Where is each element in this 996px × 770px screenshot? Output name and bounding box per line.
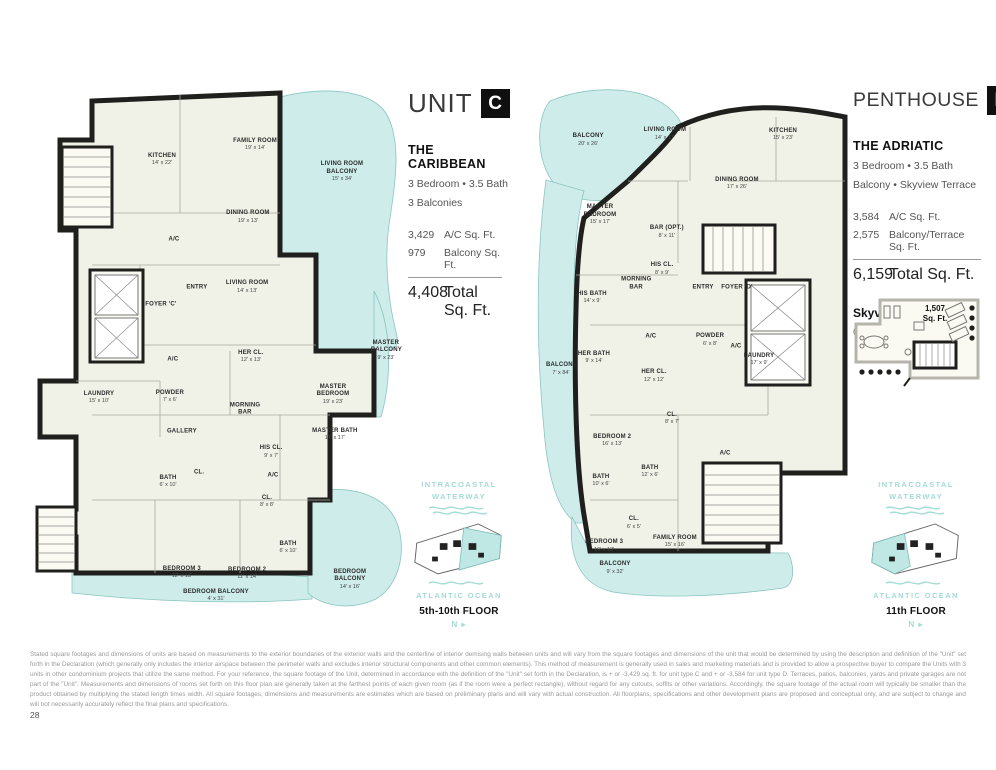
unit-c-stats: 3,429A/C Sq. Ft. 979Balcony Sq. Ft.	[408, 229, 502, 271]
room-label: BEDROOM BALCONY 14' x 16'	[326, 569, 374, 591]
unit-c-title: UNIT C	[408, 88, 508, 119]
room-label: A/C	[268, 472, 279, 480]
room-label: BEDROOM 3 12' x 13'	[163, 566, 201, 580]
room-label: BEDROOM 2 16' x 13'	[593, 434, 631, 448]
room-label: HER BATH 9' x 14'	[578, 351, 610, 365]
room-label: GALLERY	[167, 428, 197, 436]
room-label: MASTER BATH 17' x 17'	[312, 428, 357, 442]
room-label: BALCONY 7' x 84'	[546, 362, 576, 376]
room-label: KITCHEN 14' x 22'	[148, 153, 176, 167]
unit-c-total-row: 4,408 Total Sq. Ft.	[408, 277, 502, 320]
building-footprint-map	[411, 516, 507, 578]
room-label: HIS CL. 8' x 9'	[651, 262, 674, 276]
room-label: DINING ROOM 19' x 13'	[226, 210, 270, 224]
room-label: LIVING ROOM 14' x 17'	[644, 127, 687, 141]
ocean-watermark: ATLANTIC OCEAN	[403, 590, 515, 602]
room-label: LIVING ROOM 14' x 13'	[226, 280, 269, 294]
room-label: FOYER 'D'	[721, 284, 752, 292]
room-label: FAMILY ROOM 19' x 14'	[233, 138, 277, 152]
room-label: MASTER BEDROOM 15' x 17'	[576, 204, 624, 226]
penthouse-d-letter-badge: D	[987, 86, 996, 115]
penthouse-d-name: THE ADRIATIC	[853, 139, 995, 153]
legal-disclaimer: Stated square footages and dimensions of…	[30, 650, 966, 710]
unit-c-total-value: 4,408	[408, 284, 444, 320]
unit-c-floor-label: 5th-10th FLOOR	[403, 606, 515, 617]
unit-c-info-panel: UNIT C THE CARIBBEAN 3 Bedroom • 3.5 Bat…	[408, 88, 508, 320]
room-label: LAUNDRY 15' x 10'	[84, 391, 115, 405]
penthouse-d-spec-balcony-terrace: Balcony • Skyview Terrace	[853, 179, 995, 191]
penthouse-d-floor-label: 11th FLOOR	[860, 606, 972, 617]
wave-icon	[427, 580, 491, 590]
penthouse-d-total-label: Total Sq. Ft.	[889, 266, 974, 284]
unit-c-spec-balconies: 3 Balconies	[408, 197, 508, 209]
north-indicator: N ▸	[403, 620, 515, 629]
room-label: A/C	[720, 450, 731, 458]
room-label: HIS BATH 14' x 9'	[577, 291, 607, 305]
unit-c-spec-bed-bath: 3 Bedroom • 3.5 Bath	[408, 178, 508, 190]
room-label: CL.	[194, 469, 204, 477]
room-label: MASTER BEDROOM 19' x 23'	[309, 384, 357, 406]
room-label: BEDROOM BALCONY 4' x 31'	[183, 589, 249, 603]
terrace-area-label: 1,507 Sq. Ft.	[912, 304, 958, 325]
stat-row: 979Balcony Sq. Ft.	[408, 247, 502, 271]
room-label: HER CL. 12' x 12'	[641, 369, 666, 383]
penthouse-d-stats: 3,584A/C Sq. Ft. 2,575Balcony/Terrace Sq…	[853, 211, 981, 253]
room-label: CL. 8' x 8'	[260, 495, 274, 509]
room-label: BATH 6' x 10'	[279, 541, 296, 555]
unit-c-keyplan: INTRACOASTAL WATERWAY ATLANTIC OCEAN 5th…	[403, 479, 515, 629]
room-label: HER CL. 12' x 13'	[238, 350, 263, 364]
room-label: CL. 8' x 7'	[665, 412, 679, 426]
page-number: 28	[30, 710, 39, 720]
room-label: A/C	[167, 356, 178, 364]
penthouse-d-title-word: PENTHOUSE	[853, 89, 979, 112]
room-label: BALCONY 9' x 32'	[599, 561, 630, 575]
waterway-watermark: INTRACOASTAL WATERWAY	[403, 479, 515, 503]
north-indicator: N ▸	[860, 620, 972, 629]
penthouse-d-floorplan: BALCONY 20' x 26' LIVING ROOM 14' x 17' …	[528, 85, 848, 620]
penthouse-d-spec-bed-bath: 3 Bedroom • 3.5 Bath	[853, 160, 995, 172]
room-label: MORNING BAR	[230, 402, 260, 417]
room-label: A/C	[645, 333, 656, 341]
skyview-terrace-miniplan: 1,507 Sq. Ft.	[850, 294, 990, 390]
penthouse-d-keyplan: INTRACOASTAL WATERWAY ATLANTIC OCEAN 11t…	[860, 479, 972, 629]
unit-c-total-label: Total Sq. Ft.	[444, 284, 502, 320]
waterway-watermark: INTRACOASTAL WATERWAY	[860, 479, 972, 503]
room-label: FAMILY ROOM 15' x 16'	[653, 535, 697, 549]
ocean-watermark: ATLANTIC OCEAN	[860, 590, 972, 602]
penthouse-d-total-value: 6,159	[853, 266, 889, 284]
room-label: MASTER BALCONY 9' x 23'	[371, 340, 401, 362]
room-label: BAR (OPT.) 8' x 11'	[650, 225, 684, 239]
stat-row: 2,575Balcony/Terrace Sq. Ft.	[853, 229, 981, 253]
wave-icon	[884, 505, 948, 515]
room-label: BATH 10' x 6'	[592, 474, 609, 488]
room-label: POWDER 6' x 8'	[696, 333, 724, 347]
room-label: BEDROOM 3 16' x 13'	[585, 539, 623, 553]
room-label: BALCONY 20' x 26'	[573, 133, 604, 147]
room-label: HIS CL. 9' x 7'	[260, 445, 283, 459]
brochure-page: KITCHEN 14' x 22' FAMILY ROOM 19' x 14' …	[0, 0, 996, 770]
room-label: A/C	[169, 236, 180, 244]
room-label: BEDROOM 2 11' x 14'	[228, 567, 266, 581]
room-label: A/C	[731, 343, 742, 351]
unit-c-name: THE CARIBBEAN	[408, 143, 508, 171]
room-label: MORNING BAR	[621, 277, 651, 292]
room-label: KITCHEN 15' x 23'	[769, 128, 797, 142]
stat-row: 3,429A/C Sq. Ft.	[408, 229, 502, 241]
wave-icon	[884, 580, 948, 590]
building-footprint-map	[868, 516, 964, 578]
penthouse-d-room-labels: BALCONY 20' x 26' LIVING ROOM 14' x 17' …	[528, 85, 848, 620]
room-label: BATH 12' x 6'	[641, 465, 658, 479]
room-label: FOYER 'C'	[145, 301, 176, 309]
penthouse-d-title: PENTHOUSE D	[853, 86, 995, 115]
room-label: ENTRY	[692, 284, 713, 292]
terrace-area-unit: Sq. Ft.	[912, 314, 958, 324]
terrace-area-value: 1,507	[912, 304, 958, 314]
unit-c-title-word: UNIT	[408, 88, 473, 119]
unit-c-room-labels: KITCHEN 14' x 22' FAMILY ROOM 19' x 14' …	[30, 85, 405, 620]
room-label: BATH 6' x 10'	[159, 475, 176, 489]
stat-row: 3,584A/C Sq. Ft.	[853, 211, 981, 223]
room-label: CL. 6' x 5'	[627, 516, 641, 530]
room-label: POWDER 7' x 6'	[156, 390, 184, 404]
room-label: LIVING ROOM BALCONY 15' x 34'	[318, 161, 366, 183]
wave-icon	[427, 505, 491, 515]
room-label: LAUNDRY 17' x 9'	[744, 353, 775, 367]
room-label: ENTRY	[186, 284, 207, 292]
unit-c-letter-badge: C	[481, 89, 510, 118]
penthouse-d-total-row: 6,159 Total Sq. Ft.	[853, 259, 981, 284]
room-label: DINING ROOM 17' x 26'	[715, 177, 759, 191]
unit-c-floorplan: KITCHEN 14' x 22' FAMILY ROOM 19' x 14' …	[30, 85, 405, 620]
